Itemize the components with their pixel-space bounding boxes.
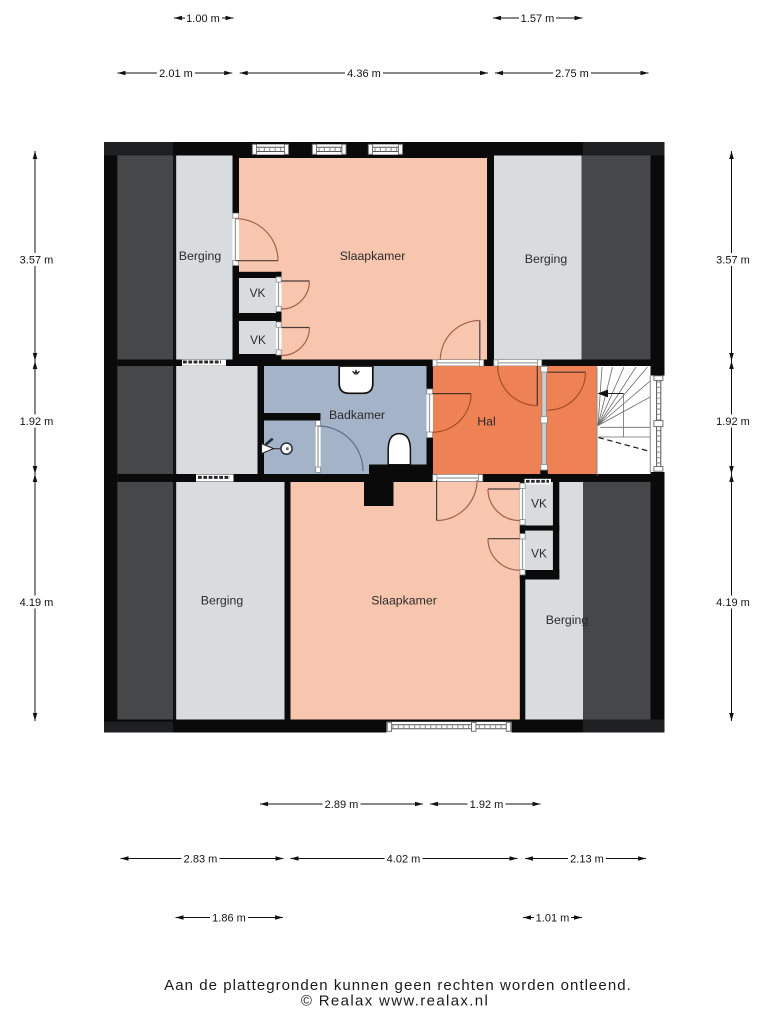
svg-text:3.57 m: 3.57 m xyxy=(716,255,750,267)
svg-text:VK: VK xyxy=(531,497,547,511)
svg-text:Hal: Hal xyxy=(477,415,495,429)
svg-text:1.92 m: 1.92 m xyxy=(470,799,504,811)
svg-text:Berging: Berging xyxy=(201,594,244,608)
svg-text:2.01 m: 2.01 m xyxy=(159,68,193,80)
svg-text:© Realax www.realax.nl: © Realax www.realax.nl xyxy=(301,993,489,1010)
svg-text:4.19 m: 4.19 m xyxy=(716,597,750,609)
svg-text:2.83 m: 2.83 m xyxy=(184,854,218,866)
svg-text:1.01 m: 1.01 m xyxy=(536,913,570,925)
svg-text:Berging: Berging xyxy=(179,249,222,263)
svg-text:4.36 m: 4.36 m xyxy=(347,68,381,80)
svg-text:1.92 m: 1.92 m xyxy=(20,416,54,428)
svg-text:Slaapkamer: Slaapkamer xyxy=(371,594,437,608)
svg-text:Berging: Berging xyxy=(546,613,589,627)
svg-text:2.13 m: 2.13 m xyxy=(570,854,604,866)
svg-text:Badkamer: Badkamer xyxy=(329,408,385,422)
svg-text:1.57 m: 1.57 m xyxy=(521,13,555,25)
svg-text:4.02 m: 4.02 m xyxy=(387,854,421,866)
svg-text:VK: VK xyxy=(531,547,547,561)
svg-text:4.19 m: 4.19 m xyxy=(20,597,54,609)
svg-text:3.57 m: 3.57 m xyxy=(20,255,54,267)
svg-text:VK: VK xyxy=(250,286,266,300)
svg-text:Aan de plattegronden kunnen ge: Aan de plattegronden kunnen geen rechten… xyxy=(164,977,632,994)
svg-text:Berging: Berging xyxy=(525,252,568,266)
svg-text:1.00 m: 1.00 m xyxy=(186,13,220,25)
svg-text:1.86 m: 1.86 m xyxy=(212,913,246,925)
svg-text:1.92 m: 1.92 m xyxy=(716,416,750,428)
svg-text:VK: VK xyxy=(250,333,266,347)
svg-text:Slaapkamer: Slaapkamer xyxy=(340,249,406,263)
svg-text:2.89 m: 2.89 m xyxy=(325,799,359,811)
svg-text:2.75 m: 2.75 m xyxy=(555,68,589,80)
